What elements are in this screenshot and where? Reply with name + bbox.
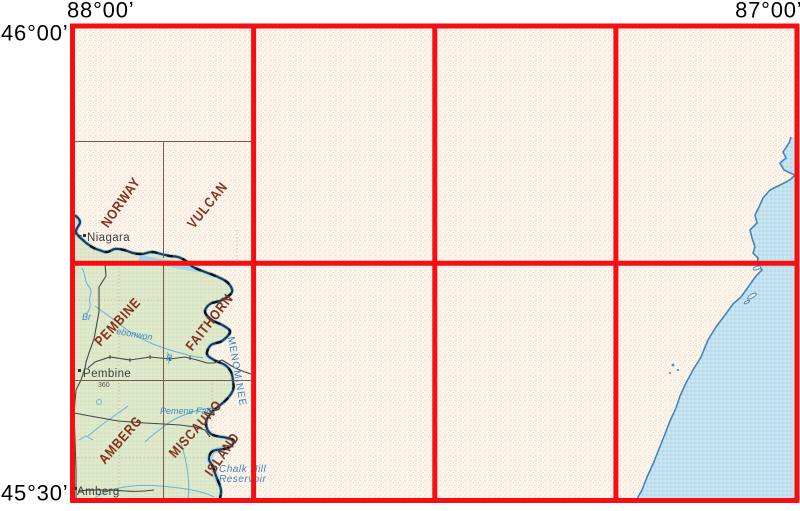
svg-text:Pembine: Pembine bbox=[83, 368, 131, 380]
svg-text:360: 360 bbox=[98, 382, 110, 389]
svg-text:Br: Br bbox=[82, 312, 92, 322]
svg-text:87°00’: 87°00’ bbox=[735, 0, 800, 23]
svg-text:Niagara: Niagara bbox=[87, 232, 130, 244]
svg-text:88°00’: 88°00’ bbox=[67, 0, 134, 23]
svg-text:46°00’: 46°00’ bbox=[1, 21, 68, 46]
svg-text:Reservoir: Reservoir bbox=[219, 474, 266, 485]
svg-text:R: R bbox=[166, 353, 173, 363]
svg-text:45°30’: 45°30’ bbox=[1, 481, 68, 506]
svg-text:Pemene Falls: Pemene Falls bbox=[160, 406, 216, 416]
svg-text:Amberg: Amberg bbox=[77, 486, 120, 498]
